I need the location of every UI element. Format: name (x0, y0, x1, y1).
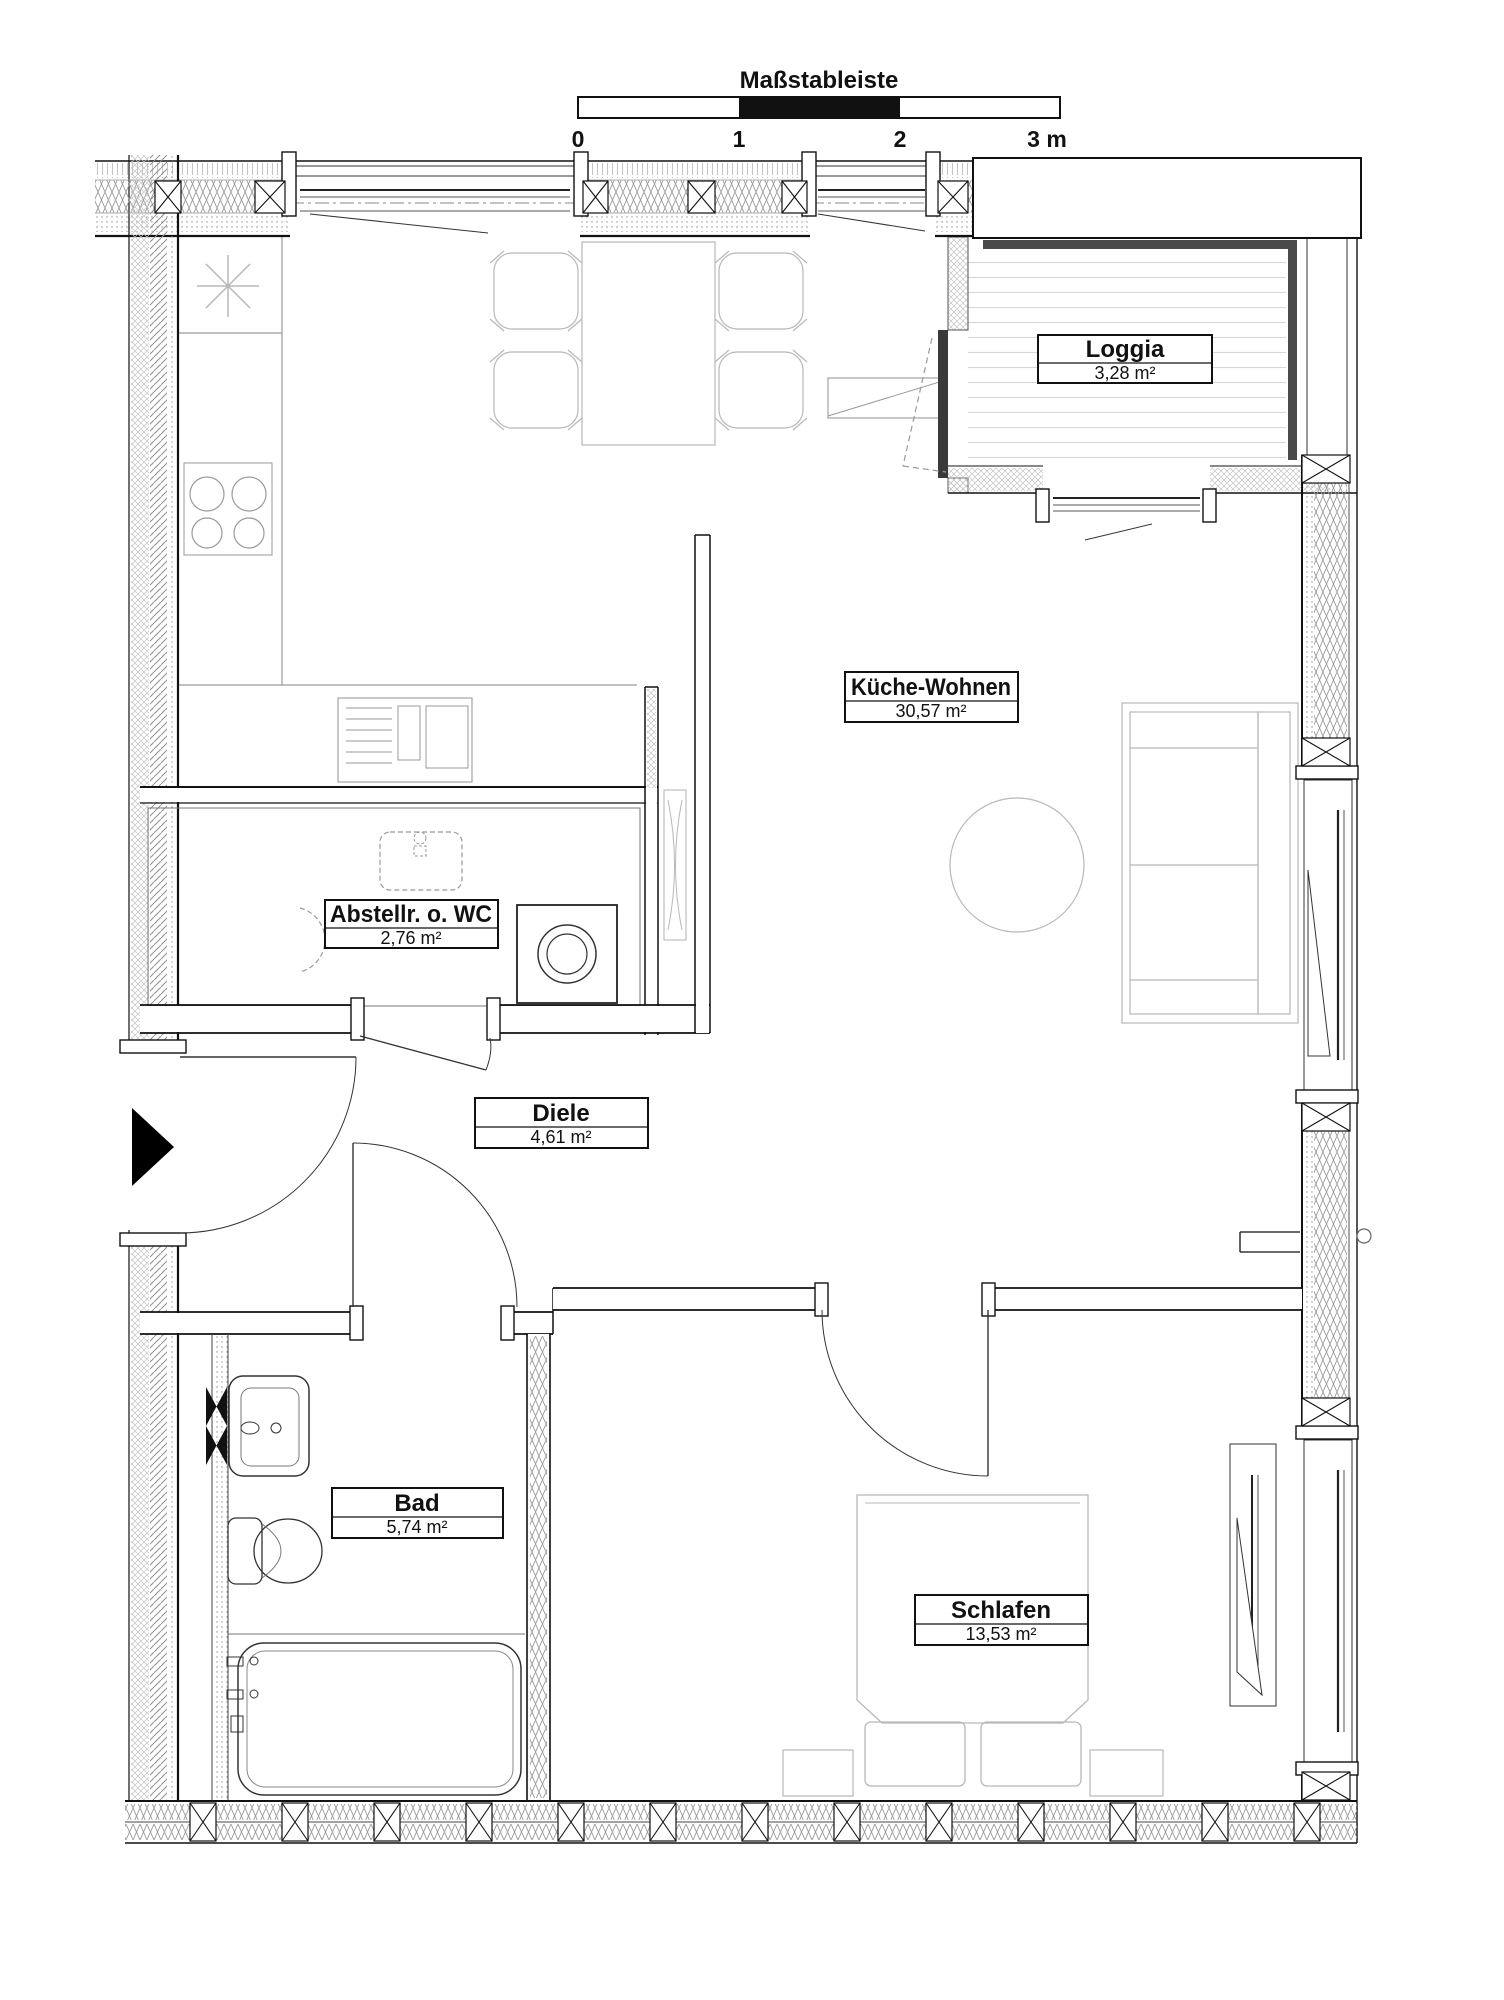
room-area: 13,53 m² (965, 1624, 1036, 1644)
wall-post-x (782, 181, 807, 213)
exterior-wall-south (125, 1801, 1357, 1840)
wall-post-x (1202, 1803, 1228, 1841)
wall-post-x (466, 1803, 492, 1841)
wall-post-x (190, 1803, 216, 1841)
wall-post-x (155, 181, 181, 213)
room-area: 2,76 m² (380, 928, 441, 948)
room-label-schlafen: Schlafen 13,53 m² (915, 1595, 1088, 1645)
stove (184, 463, 272, 555)
wall-post-x (1302, 455, 1350, 483)
room-name: Abstellr. o. WC (330, 901, 492, 928)
round-table (950, 798, 1084, 932)
room-name: Schlafen (951, 1597, 1051, 1624)
room-area: 4,61 m² (530, 1127, 591, 1147)
pillow (981, 1722, 1081, 1786)
room-name: Diele (532, 1100, 589, 1127)
loggia-window (1036, 464, 1216, 540)
room-name: Bad (394, 1490, 439, 1517)
room-area: 30,57 m² (895, 701, 966, 721)
neighbour-structure (973, 158, 1361, 238)
scale-bar-segment (739, 97, 900, 118)
floor-plan-drawing: Loggia 3,28 m² Küche-Wohnen 30,57 m² Abs… (0, 0, 1504, 2000)
dining-chair (490, 251, 582, 331)
exterior-wall-west (131, 155, 178, 1800)
window-east-bedroom (1230, 1426, 1358, 1775)
loggia-railing (1288, 240, 1297, 460)
room-area: 5,74 m² (386, 1517, 447, 1537)
tall-cabinet (664, 790, 686, 940)
scale-tick: 0 (572, 126, 585, 152)
wall-post-x (1302, 1772, 1350, 1800)
bad-door (353, 1143, 517, 1307)
floor-plan-page: Loggia 3,28 m² Küche-Wohnen 30,57 m² Abs… (0, 0, 1504, 2000)
room-name: Küche-Wohnen (851, 674, 1011, 701)
kitchen-appliance-block (338, 698, 472, 782)
toilet (228, 1518, 322, 1584)
wall-post-x (688, 181, 715, 213)
door-handle-icon (1357, 1229, 1371, 1243)
wall-post-x (650, 1803, 676, 1841)
wall-post-x (1302, 1398, 1350, 1426)
wall-post-x (374, 1803, 400, 1841)
entrance-door (180, 1057, 356, 1233)
dining-chair (715, 350, 807, 430)
wall-post-x (742, 1803, 768, 1841)
room-label-diele: Diele 4,61 m² (475, 1098, 648, 1148)
room-area: 3,28 m² (1094, 363, 1155, 383)
room-label-loggia: Loggia 3,28 m² (1038, 335, 1212, 383)
loggia-door-frame (938, 330, 948, 478)
room-label-abstellraum: Abstellr. o. WC 2,76 m² (325, 900, 498, 948)
wall-post-x (1018, 1803, 1044, 1841)
wall-post-x (255, 181, 285, 213)
radiator (828, 378, 946, 418)
schlafen-door (822, 1310, 988, 1476)
dining-chair (715, 251, 807, 331)
wall-post-x (1302, 738, 1350, 766)
scale-tick: 1 (733, 126, 746, 152)
window-north-kitchen (282, 152, 588, 233)
wall-post-x (558, 1803, 584, 1841)
sofa (1122, 703, 1298, 1023)
wall-post-x (938, 181, 968, 213)
sink-star-icon (197, 255, 259, 317)
wall-post-x (1294, 1803, 1320, 1841)
scale-bar-title: Maßstableiste (740, 67, 899, 94)
room-labels: Loggia 3,28 m² Küche-Wohnen 30,57 m² Abs… (325, 335, 1212, 1645)
scale-bar: Maßstableiste 0 1 2 3 m (572, 67, 1067, 152)
kitchen-counter (178, 237, 637, 685)
storage-door (360, 1036, 491, 1070)
wall-post-x (926, 1803, 952, 1841)
room-label-bad: Bad 5,74 m² (332, 1488, 503, 1538)
wall-post-x (282, 1803, 308, 1841)
dining-chair (490, 350, 582, 430)
loggia-railing (983, 240, 1297, 249)
nightstand (1090, 1750, 1163, 1796)
entrance-arrow-icon (132, 1108, 174, 1186)
wall-post-x (1302, 1103, 1350, 1131)
wash-basin (229, 1376, 309, 1476)
pillow (865, 1722, 965, 1786)
exterior-wall-north (95, 163, 973, 236)
washing-machine (517, 905, 617, 1003)
scale-tick: 2 (894, 126, 907, 152)
window-east-living (1296, 766, 1358, 1103)
dining-table (582, 242, 715, 445)
wall-post-x (1110, 1803, 1136, 1841)
wall-post-x (583, 181, 608, 213)
nightstand (783, 1750, 853, 1796)
bathtub (227, 1643, 521, 1795)
interior-walls (140, 535, 1302, 1800)
room-name: Loggia (1086, 336, 1165, 363)
wall-post-x (834, 1803, 860, 1841)
room-label-kueche-wohnen: Küche-Wohnen 30,57 m² (845, 672, 1018, 722)
scale-tick: 3 m (1027, 126, 1067, 152)
window-north-living (802, 152, 940, 231)
